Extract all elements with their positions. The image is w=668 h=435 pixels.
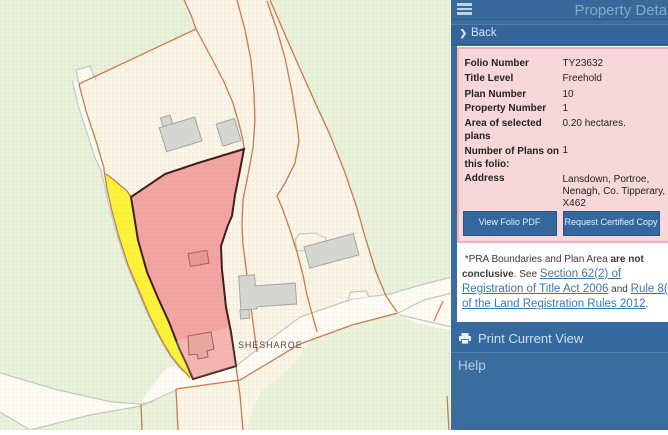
svg-text:SHESHAROE: SHESHAROE [238,340,303,350]
